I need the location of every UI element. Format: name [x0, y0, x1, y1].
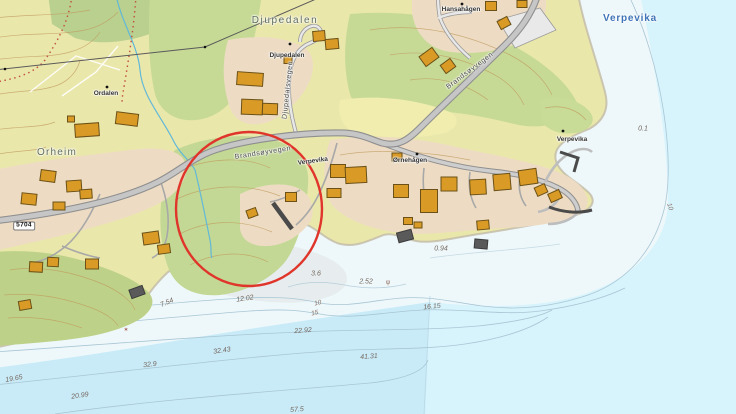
- place-label-djupedalen: Djupedalen: [252, 16, 319, 26]
- depth-sounding: 3.6: [311, 271, 321, 278]
- depth-sounding: 22.92: [294, 327, 312, 335]
- place-label-ornehagen: Ørnehågen: [393, 158, 427, 165]
- depth-sounding: 2.52: [359, 279, 373, 286]
- kelp-symbol: ψ: [386, 280, 390, 286]
- map-canvas: [0, 0, 736, 414]
- place-label-verpevika-small: Verpevika: [557, 137, 587, 144]
- depth-sounding: 0.1: [638, 126, 648, 133]
- place-label-orheim: Orheim: [37, 148, 77, 158]
- place-label-djupedalen-small: Djupedalen: [269, 53, 304, 60]
- road-number-badge: 5704: [13, 222, 35, 231]
- depth-sounding: 57.5: [290, 406, 304, 414]
- depth-sounding: 32.9: [143, 361, 157, 369]
- depth-sounding: 0.94: [434, 246, 448, 253]
- map-screenshot[interactable]: Djupedalen Djupedalen Hansahågen Verpevi…: [0, 0, 736, 414]
- rock-awash-symbol: ✶: [123, 327, 128, 334]
- depth-sounding: 41.31: [360, 353, 378, 361]
- place-label-ordalen: Ordalen: [94, 91, 119, 98]
- place-label-hansahagen: Hansahågen: [442, 7, 481, 14]
- sea-label-verpevika: Verpevika: [603, 14, 657, 24]
